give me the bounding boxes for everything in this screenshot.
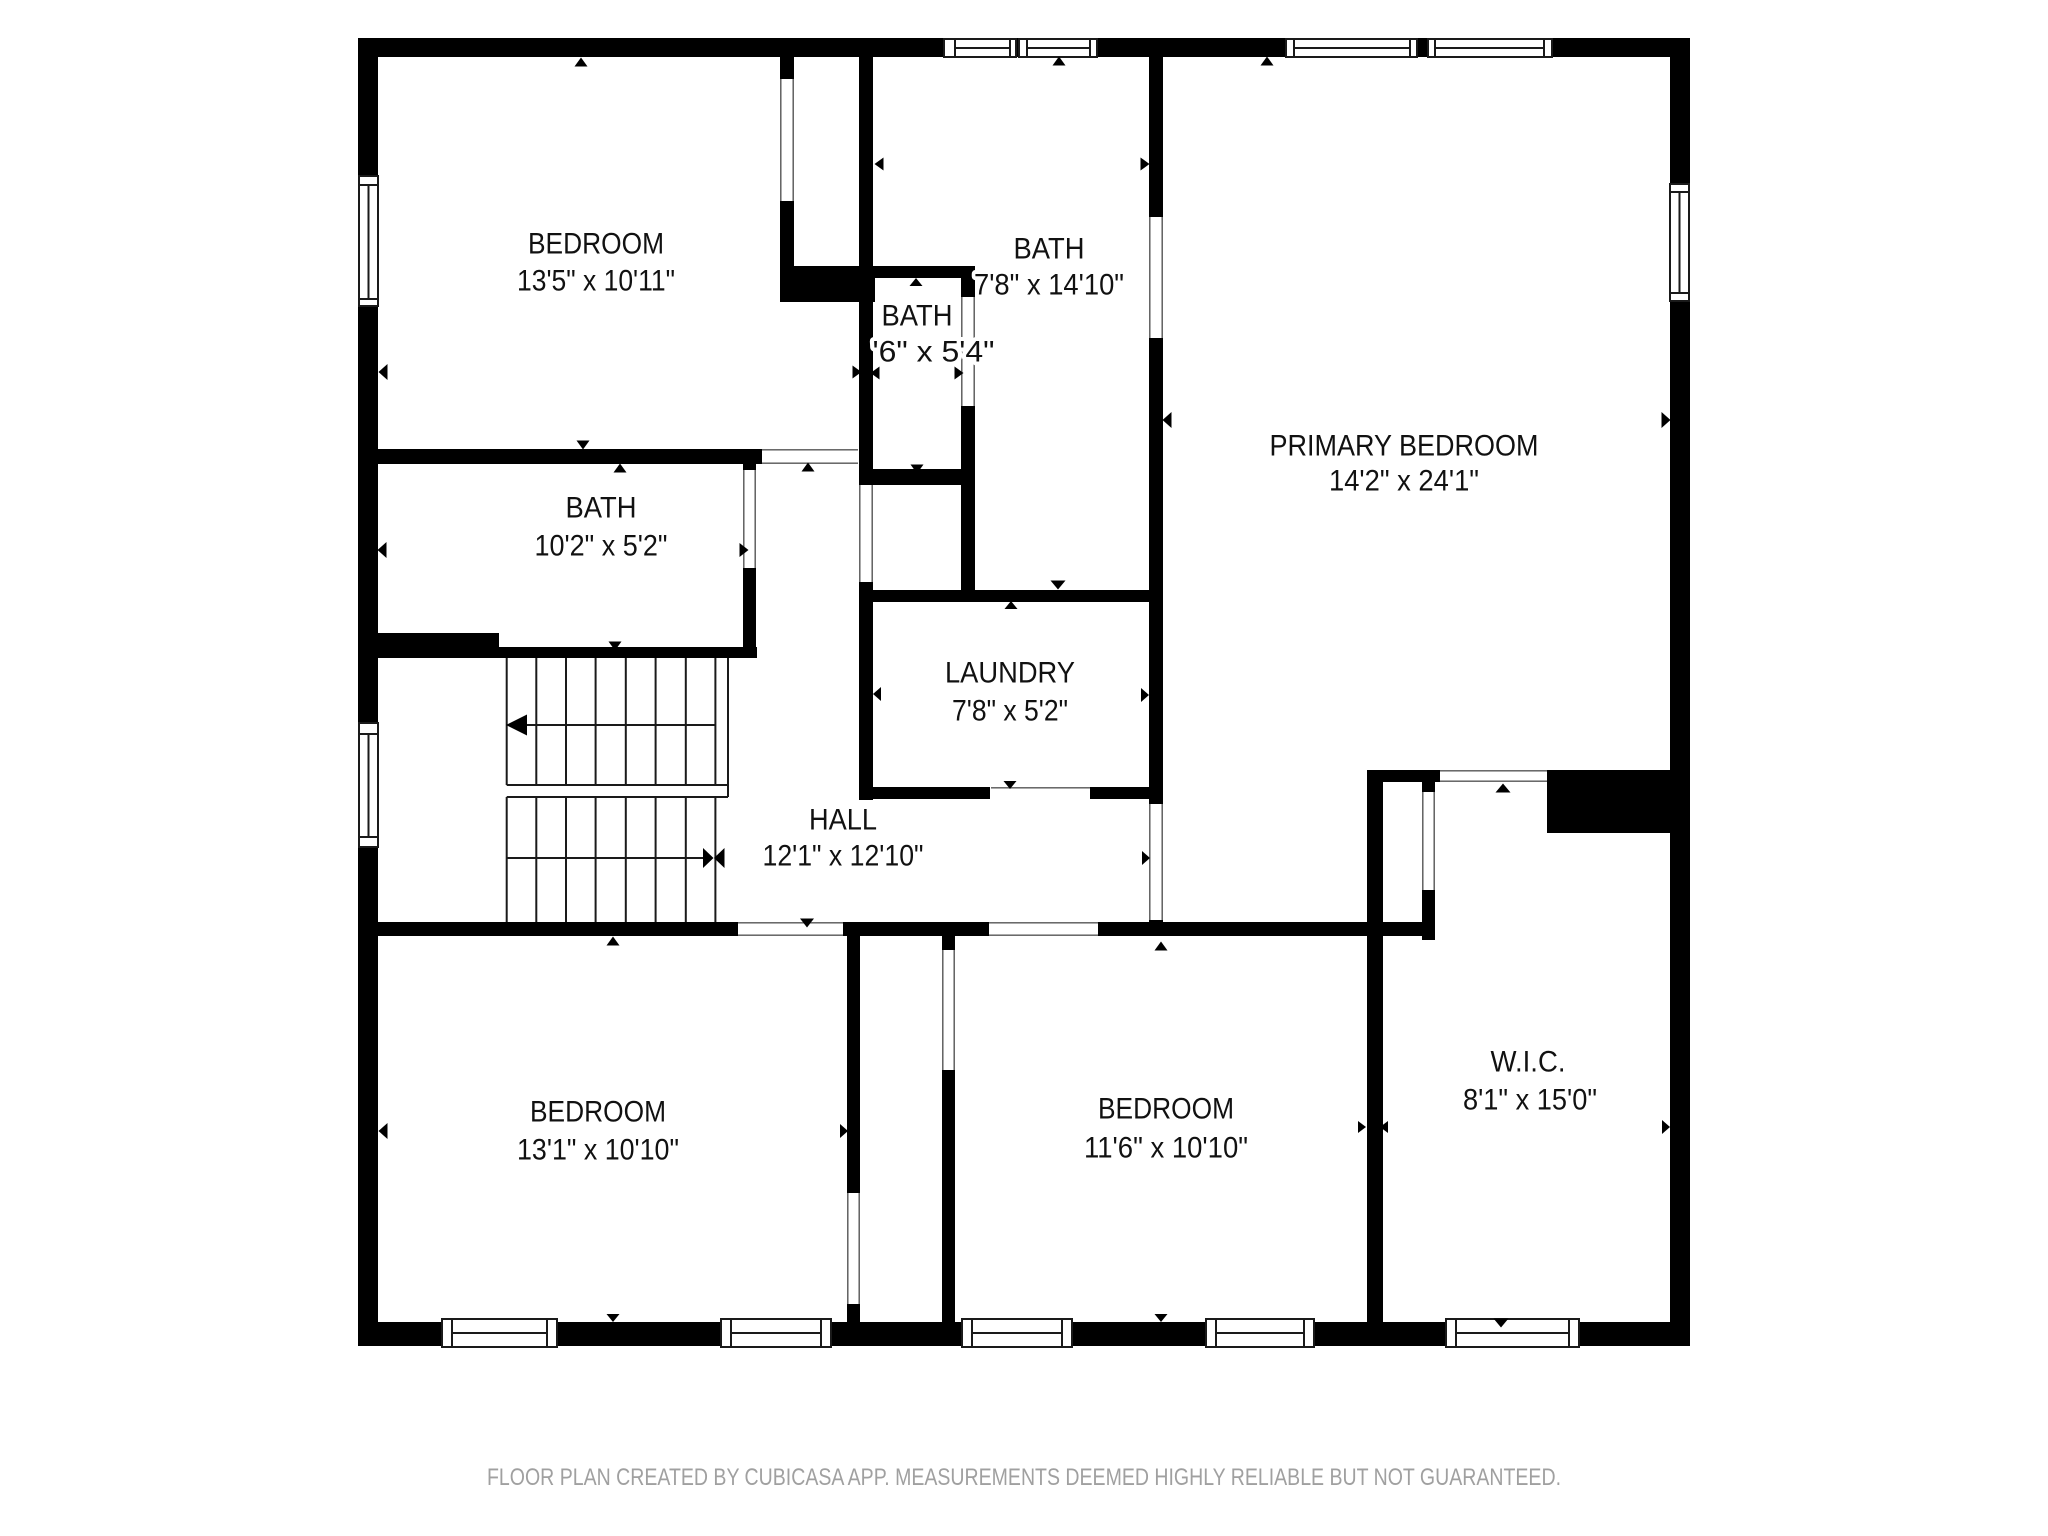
svg-text:7'8" x 14'10": 7'8" x 14'10": [974, 269, 1124, 302]
svg-text:BEDROOM: BEDROOM: [530, 1096, 666, 1129]
svg-text:7'8" x 5'2": 7'8" x 5'2": [952, 695, 1068, 728]
svg-text:14'2" x 24'1": 14'2" x 24'1": [1329, 465, 1479, 498]
svg-text:10'2" x 5'2": 10'2" x 5'2": [535, 530, 668, 563]
svg-text:BEDROOM: BEDROOM: [528, 228, 664, 261]
svg-text:13'5" x 10'11": 13'5" x 10'11": [517, 265, 675, 298]
svg-text:BEDROOM: BEDROOM: [1098, 1093, 1234, 1126]
svg-text:W.I.C.: W.I.C.: [1491, 1046, 1566, 1079]
svg-text:FLOOR PLAN CREATED BY CUBICASA: FLOOR PLAN CREATED BY CUBICASA APP. MEAS…: [487, 1464, 1561, 1491]
svg-text:BATH: BATH: [566, 492, 637, 525]
svg-text:8'1" x 15'0": 8'1" x 15'0": [1463, 1084, 1597, 1117]
svg-text:PRIMARY BEDROOM: PRIMARY BEDROOM: [1270, 430, 1539, 463]
svg-text:11'6" x 10'10": 11'6" x 10'10": [1084, 1132, 1248, 1165]
svg-text:BATH: BATH: [882, 300, 953, 333]
svg-text:LAUNDRY: LAUNDRY: [945, 657, 1075, 690]
svg-text:'6" x 5'4": '6" x 5'4": [873, 336, 995, 369]
svg-text:BATH: BATH: [1014, 233, 1085, 266]
svg-text:13'1" x 10'10": 13'1" x 10'10": [517, 1134, 679, 1167]
svg-text:HALL: HALL: [809, 804, 877, 837]
svg-text:12'1" x 12'10": 12'1" x 12'10": [763, 840, 924, 873]
